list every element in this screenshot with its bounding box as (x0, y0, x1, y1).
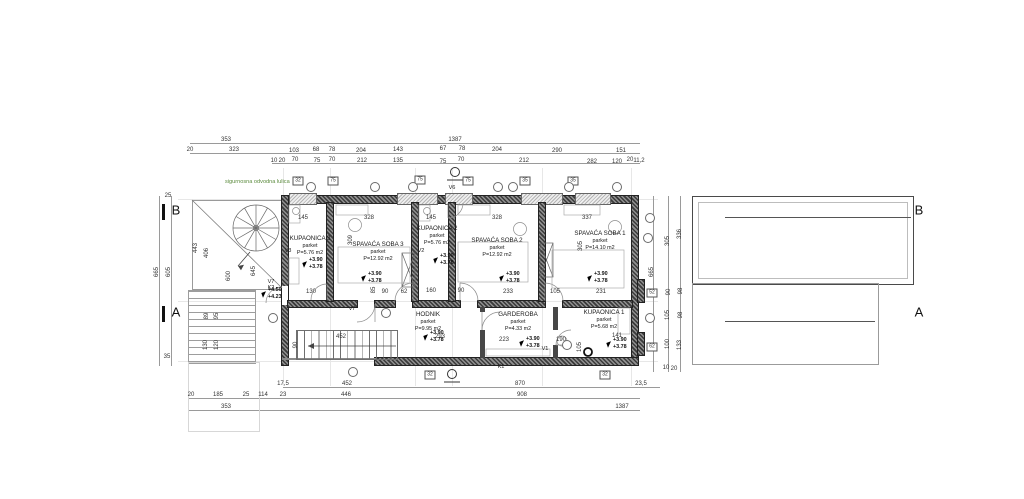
room-floor-finish: parket (430, 233, 445, 239)
dimension-label: 336 (677, 229, 683, 239)
elevation-upper: +3.90 (430, 331, 444, 337)
dimension-label: 67 (440, 146, 447, 152)
room-floor-finish: parket (303, 243, 318, 249)
dimension-label: 25 (165, 193, 172, 199)
dimension-label: 130 (306, 289, 316, 295)
dimension-label: 135 (393, 158, 403, 164)
dimension-label: 145 (298, 215, 308, 221)
dimension-label: 10 (271, 158, 278, 164)
elevation-upper: +4.50 (268, 288, 282, 294)
dimension-label: 452 (342, 381, 352, 387)
elevation-upper: +3.90 (594, 272, 608, 278)
elevation-lower: +3.78 (368, 279, 382, 285)
dimension-label: 305 (578, 241, 584, 251)
dimension-label: 100 (665, 339, 671, 349)
dimension-label: 25 (243, 392, 250, 398)
room-area: P=5.76 m2 (297, 250, 323, 256)
dimension-label: 35 (164, 354, 171, 360)
elevation-lower: +3.78 (430, 338, 444, 344)
detail-tag-circle (268, 313, 278, 323)
room-name: GARDEROBA (498, 312, 538, 319)
dimension-label: 78 (329, 147, 336, 153)
dimension-label: 120 (612, 159, 622, 165)
dimension-label: 665 (649, 267, 655, 277)
dimension-label: 120 (214, 340, 220, 350)
dimension-label: 75 (314, 158, 321, 164)
detail-tag-circle (643, 233, 653, 243)
dimension-label: 406 (204, 248, 210, 258)
dimension-label: 62 (401, 289, 408, 295)
dimension-label: 605 (166, 267, 172, 277)
section-c-marks (444, 168, 463, 383)
room-area: P=4.33 m2 (505, 326, 531, 332)
dimension-label: 323 (229, 147, 239, 153)
dimension-label: 90 (293, 342, 299, 349)
dimension-label: 212 (357, 158, 367, 164)
reference-label: K1 (498, 364, 505, 370)
detail-tag-circle (493, 182, 503, 192)
dimension-label: 452 (336, 334, 346, 340)
dimension-label: 114 (258, 392, 268, 398)
detail-tag-circle (306, 182, 316, 192)
dimension-label: 105 (665, 310, 671, 320)
dimension-label: 282 (587, 159, 597, 165)
elevation-upper: +3.90 (613, 338, 627, 344)
detail-tag-square: 62 (647, 343, 658, 352)
detail-tag-circle (408, 182, 418, 192)
dimension-label: 11,2 (633, 158, 644, 164)
elevation-upper: +3.90 (440, 254, 454, 260)
room-floor-finish: parket (597, 317, 612, 323)
section-letter: A (172, 306, 181, 319)
detail-tag-circle (381, 308, 391, 318)
room-area: P=12.92 m2 (482, 252, 511, 258)
dimension-label: 145 (426, 215, 436, 221)
reference-label: V3 (285, 248, 292, 254)
dimension-label: 20 (188, 392, 195, 398)
room-name: SPAVAĆA SOBA 3 (352, 242, 403, 249)
room-floor-finish: parket (371, 249, 386, 255)
detail-tag-square: 32 (293, 177, 304, 186)
room-name: KUPAONICA 1 (584, 310, 625, 317)
room-name: KUPAONICA 3 (290, 236, 331, 243)
dimension-label: 20 (671, 366, 678, 372)
room-floor-finish: parket (511, 319, 526, 325)
dimension-label: 17,5 (277, 381, 289, 387)
detail-tag-square: 32 (425, 371, 436, 380)
dimension-label: 353 (221, 404, 231, 410)
dimension-label: 645 (251, 266, 257, 276)
elevation-lower: +3.78 (526, 344, 540, 350)
dimension-label: 133 (677, 340, 683, 350)
dimension-label: 105 (577, 342, 583, 352)
room-area: P=12.92 m2 (363, 256, 392, 262)
dimension-label: 328 (364, 215, 374, 221)
dimension-label: 185 (213, 392, 223, 398)
reference-label: V2 (418, 248, 425, 254)
room-name: KUPAONICA 2 (417, 226, 458, 233)
dimension-label: 90 (666, 289, 672, 296)
dimension-label: 151 (616, 148, 626, 154)
room-name: SPAVAĆA SOBA 2 (471, 238, 522, 245)
room-floor-finish: parket (593, 238, 608, 244)
dimension-label: 20 (279, 158, 286, 164)
dimension-label: 443 (193, 243, 199, 253)
dimension-label: 89 (204, 313, 210, 320)
elevation-lower: +3.78 (506, 279, 520, 285)
dimension-label: 105 (550, 289, 560, 295)
dimension-label: 204 (492, 147, 502, 153)
dimension-label: 233 (503, 289, 513, 295)
dimension-label: 290 (552, 148, 562, 154)
detail-tag-circle (564, 182, 574, 192)
reference-label: V6 (449, 185, 456, 191)
dimension-label: 223 (499, 337, 509, 343)
room-floor-finish: parket (421, 319, 436, 325)
detail-tag-circle (612, 182, 622, 192)
dimension-label: 98 (678, 312, 684, 319)
dimension-label: 70 (329, 157, 336, 163)
ventilation-shafts (402, 243, 553, 287)
section-letter: A (915, 306, 924, 319)
room-area: P=5.68 m2 (591, 324, 617, 330)
dimension-label: 75 (440, 159, 447, 165)
dimension-label: 98 (678, 288, 684, 295)
terrace-diagonal-line (192, 200, 282, 288)
dimension-label: 212 (519, 158, 529, 164)
detail-tag-circle (645, 313, 655, 323)
plan-symbol-overlay (0, 0, 1024, 499)
dimension-label: 1387 (448, 137, 461, 143)
elevation-lower: +3.78 (613, 345, 627, 351)
dimension-label: 160 (426, 288, 436, 294)
dimension-label: 204 (356, 148, 366, 154)
room-area: P=14.10 m2 (585, 245, 614, 251)
dimension-label: 90 (382, 289, 389, 295)
detail-tag-circle (348, 367, 358, 377)
elevation-lower: +3.78 (594, 279, 608, 285)
dimension-label: 600 (226, 271, 232, 281)
dimension-label: 103 (289, 148, 299, 154)
dimension-label: 231 (596, 289, 606, 295)
elevation-upper: +3.90 (526, 337, 540, 343)
elevation-upper: +3.90 (309, 258, 323, 264)
elevation-upper: +3.90 (506, 272, 520, 278)
dimension-label: 446 (341, 392, 351, 398)
elevation-upper: +3.90 (368, 272, 382, 278)
detail-tag-square: 32 (600, 371, 611, 380)
dimension-label: 130 (203, 340, 209, 350)
section-letter: B (172, 204, 181, 217)
dimension-label: 353 (221, 137, 231, 143)
floor-plan-canvas: sigurnosna odvodna lulica (0, 0, 1024, 499)
detail-tag-square: 75 (463, 177, 474, 186)
dimension-label: 70 (292, 157, 299, 163)
dimension-label: 337 (582, 215, 592, 221)
dimension-label: 665 (154, 267, 160, 277)
elevation-lower: +3.78 (440, 261, 454, 267)
dimension-label: 78 (459, 146, 466, 152)
dimension-label: 328 (492, 215, 502, 221)
detail-tag-square: 35 (520, 177, 531, 186)
dimension-label: 70 (458, 157, 465, 163)
room-name: SPAVAĆA SOBA 1 (574, 231, 625, 238)
room-name: HODNIK (416, 312, 440, 319)
detail-tag-circle (370, 182, 380, 192)
room-floor-finish: parket (490, 245, 505, 251)
detail-tag-circle (645, 213, 655, 223)
detail-tag-square: 75 (328, 177, 339, 186)
section-letter: B (915, 204, 924, 217)
reference-label: V1 (542, 346, 549, 352)
detail-tag-circle (562, 340, 572, 350)
detail-tag-square: 52 (647, 289, 658, 298)
reference-label: V7 (349, 306, 356, 312)
dimension-label: 305 (665, 236, 671, 246)
spiral-staircase (233, 205, 279, 251)
dimension-label: 95 (214, 313, 220, 320)
dimension-label: 20 (627, 157, 634, 163)
dimension-label: 20 (187, 147, 194, 153)
dimension-label: 85 (371, 287, 377, 294)
elevation-lower: +3.78 (309, 265, 323, 271)
dimension-label: 1387 (615, 404, 628, 410)
elevation-lower: +4.23 (268, 295, 282, 301)
dimension-label: 870 (515, 381, 525, 387)
dimension-label: 10 (663, 365, 670, 371)
room-area: P=5.76 m2 (424, 240, 450, 246)
dimension-label: 68 (313, 147, 320, 153)
dimension-label: 23 (280, 392, 287, 398)
dimension-label: 90 (458, 288, 465, 294)
detail-tag-circle (508, 182, 518, 192)
dimension-label: 143 (393, 147, 403, 153)
dimension-label: 23,5 (635, 381, 647, 387)
dimension-label: 908 (517, 392, 527, 398)
